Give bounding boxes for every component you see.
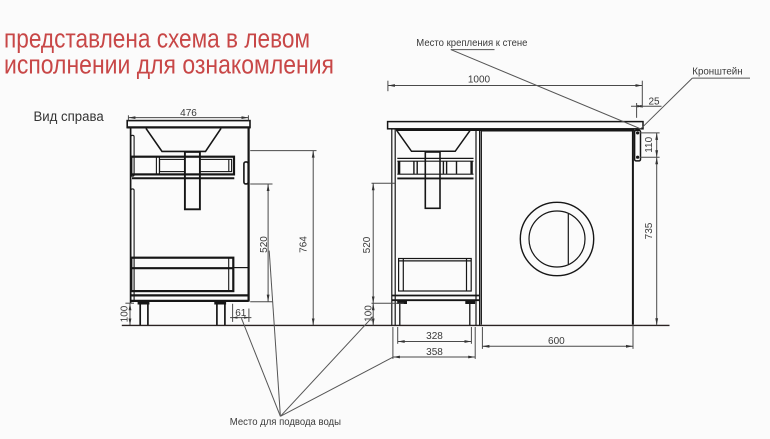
svg-text:100: 100 [119,305,130,322]
svg-text:100: 100 [363,305,374,322]
svg-text:735: 735 [644,222,655,239]
svg-text:1000: 1000 [468,74,491,85]
svg-text:358: 358 [426,347,443,358]
svg-text:Место для подвода воды: Место для подвода воды [230,417,341,428]
svg-text:110: 110 [644,136,655,152]
svg-text:520: 520 [362,236,373,253]
svg-text:исполнении для ознакомления: исполнении для ознакомления [4,50,334,80]
svg-text:Вид справа: Вид справа [34,109,105,124]
svg-text:764: 764 [298,236,309,253]
svg-text:476: 476 [180,108,197,119]
svg-text:61: 61 [235,308,247,319]
svg-text:328: 328 [426,331,443,342]
svg-text:520: 520 [259,236,270,253]
svg-text:Место крепления к стене: Место крепления к стене [416,38,528,49]
svg-text:600: 600 [548,336,565,347]
svg-text:25: 25 [648,96,660,107]
svg-text:Кронштейн: Кронштейн [692,67,742,78]
